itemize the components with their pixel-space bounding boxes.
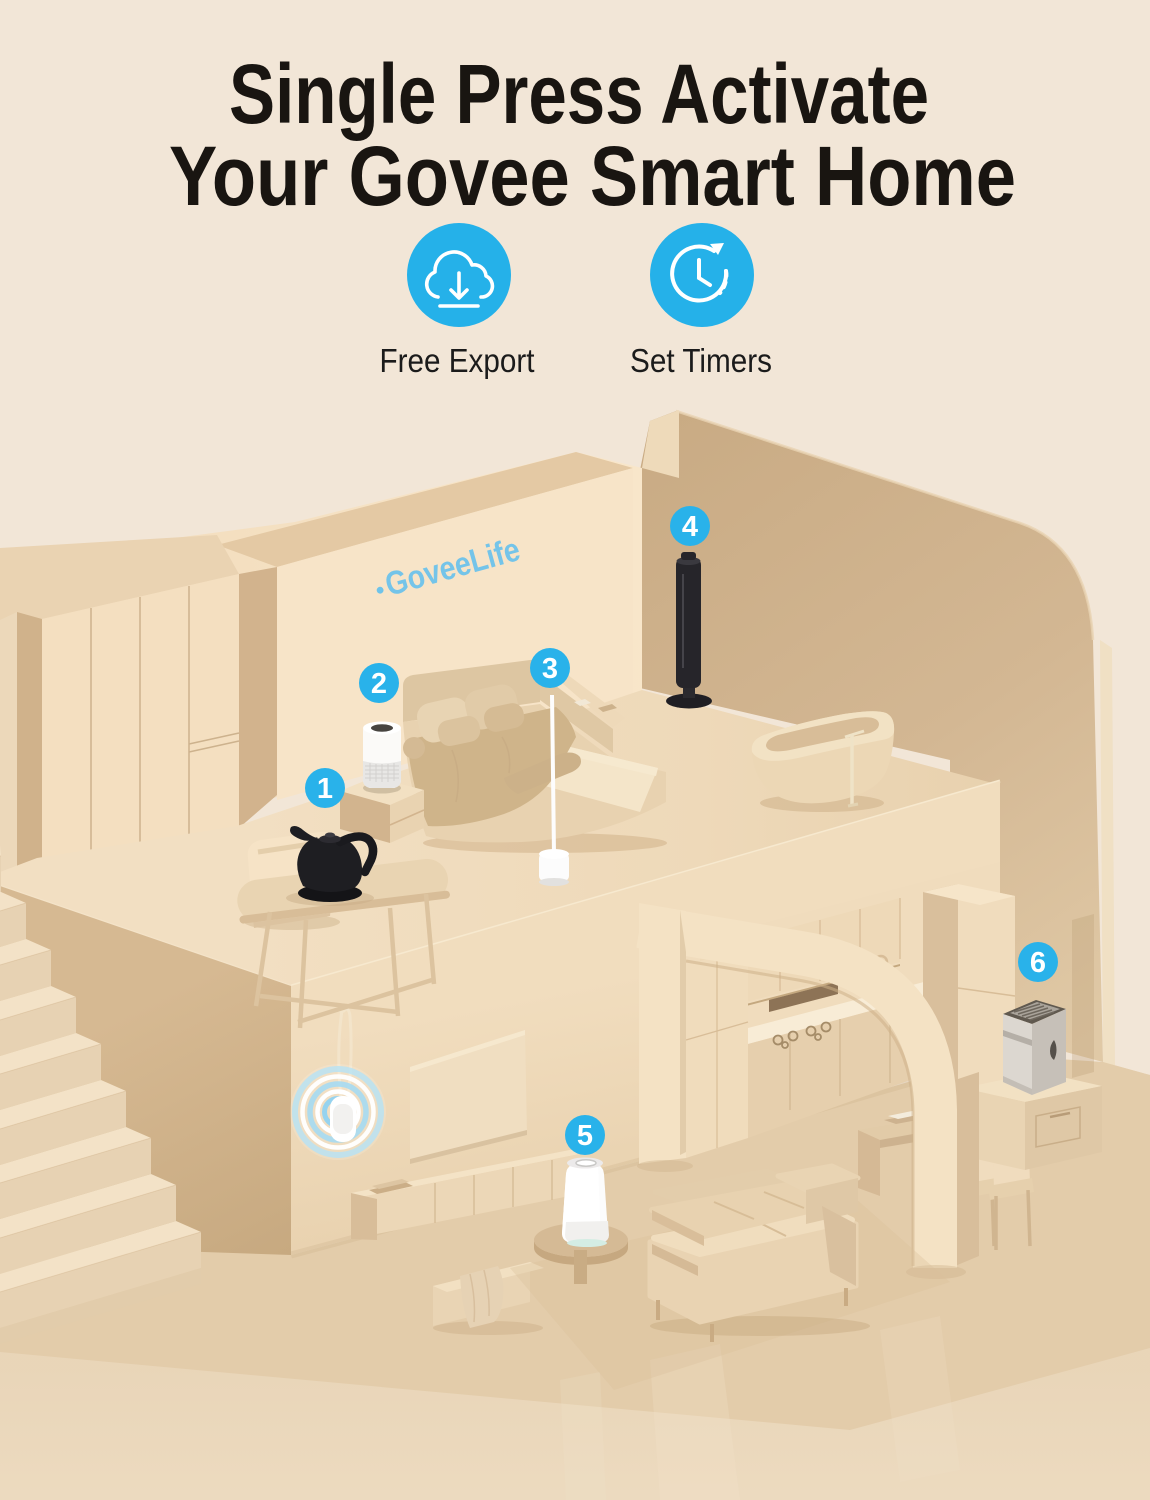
svg-text:Free Export: Free Export [380, 342, 535, 379]
svg-text:Set Timers: Set Timers [630, 342, 772, 379]
svg-text:2: 2 [371, 668, 387, 700]
svg-text:3: 3 [542, 653, 558, 685]
svg-text:Your Govee Smart Home: Your Govee Smart Home [169, 129, 1016, 223]
svg-text:5: 5 [577, 1120, 593, 1152]
svg-text:6: 6 [1030, 947, 1046, 979]
svg-text:4: 4 [682, 511, 698, 543]
svg-text:Single Press Activate: Single Press Activate [229, 47, 929, 141]
svg-text:1: 1 [317, 773, 333, 805]
